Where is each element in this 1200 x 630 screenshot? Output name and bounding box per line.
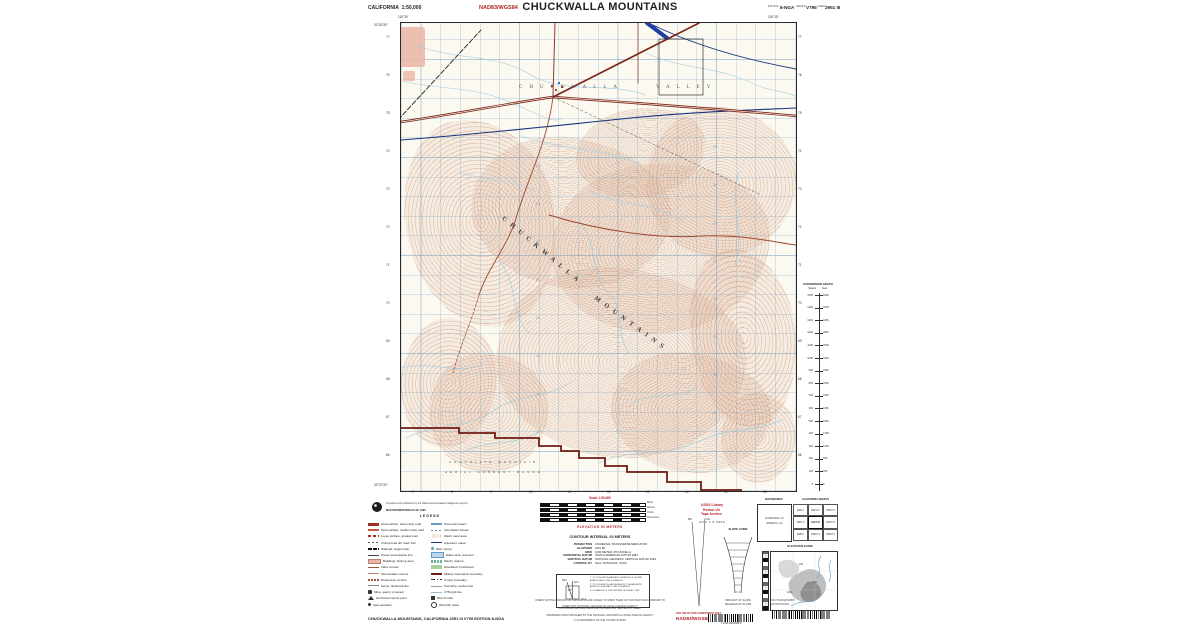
legend-block: Prepared and published by the National G…	[368, 500, 492, 613]
corner-lon-tr: 115°15′	[768, 16, 779, 20]
conversion-col-feet: Feet	[822, 288, 827, 291]
elevation-units-label: ELEVATION IN METERS	[520, 526, 680, 530]
legend-item-label: Power transmission line	[381, 553, 413, 557]
stamp-line-3: Tape Archive	[701, 513, 722, 517]
conversion-feet-value: 1000	[823, 445, 829, 448]
legend-item-label: Hard surface, medium duty road	[381, 528, 424, 532]
barcode-number: 1 1018 0051068 3	[708, 623, 754, 626]
conversion-ticks: 1500490014004600130042501200395011003600…	[797, 295, 839, 491]
wind-swatch-icon	[431, 602, 437, 608]
blue-swatch-icon	[431, 523, 442, 525]
sheet-title: CHUCKWALLA MOUNTAINS	[400, 1, 800, 13]
rail-swatch-icon	[368, 548, 379, 550]
canal-line	[653, 25, 796, 69]
footer-datum: NAD83/WGS84	[676, 617, 710, 622]
grid-number-bottom: 10	[529, 491, 533, 495]
legend-item-label: Water tank; reservoir	[446, 553, 474, 557]
declination-notes: 1. TO CONVERT A MAGNETIC AZIMUTH TO A GR…	[590, 577, 647, 594]
conversion-tick	[815, 434, 823, 435]
footer-center-1: PREPARED AND PUBLISHED BY THE NATIONAL G…	[530, 615, 670, 618]
declination-note: 1. TO CONVERT A MAGNETIC AZIMUTH TO A GR…	[590, 577, 647, 583]
boundaries-title: BOUNDARIES	[757, 499, 791, 502]
spec-value: NGA, NOS/NOAA, USGS	[595, 562, 627, 566]
grid-number-bottom: 9	[490, 491, 492, 495]
x-swatch-icon	[368, 590, 372, 594]
scale-bar	[540, 513, 646, 517]
conversion-title: CONVERSION GRAPH	[797, 283, 839, 286]
slope-guide-title: SLOPE GUIDE	[714, 528, 762, 531]
conversion-feet-value: 0	[823, 483, 824, 486]
footer-edition-note: EDITION 8-NGA	[770, 604, 789, 607]
cbrownd-swatch-icon	[368, 579, 379, 581]
conversion-meters-value: 1200	[807, 331, 813, 334]
legend-item-label: Woodland; brushwood	[444, 565, 474, 569]
bdry-swatch-icon	[431, 573, 442, 575]
conversion-feet-value: 1950	[823, 407, 829, 410]
scale-label: Scale 1:50,000	[520, 497, 680, 501]
conversion-meters-value: 400	[809, 432, 813, 435]
footer-sheet-id: CHUCKWALLA MOUNTAINS, CALIFORNIA 2951 II…	[368, 617, 504, 621]
grid-number-left: 67	[386, 416, 390, 420]
conversion-graph: CONVERSION GRAPH Meters Feet 15004900140…	[797, 283, 839, 495]
adjoining-sheet-cell: 3050 IV	[823, 529, 838, 541]
grid-number-bottom: 8	[451, 491, 453, 495]
gunnery-range-label-2: AERIAL GUNNERY RANGE	[445, 471, 543, 474]
dotb-swatch-icon	[431, 547, 434, 550]
grid-number-left: 72	[386, 226, 390, 230]
conversion-meters-value: 500	[809, 420, 813, 423]
legend-item-label: Perennial stream	[444, 522, 467, 526]
conversion-feet-value: 4900	[823, 294, 829, 297]
stream-lines	[401, 45, 796, 463]
interior-grid-number: 23	[713, 222, 717, 226]
adjoining-sheet-cell: 2951 IV	[808, 504, 823, 516]
series-prefix: SERIES	[796, 6, 806, 9]
bluet-swatch-icon	[431, 542, 442, 544]
sheets-grid-title: CALIFORNIA SHEETS	[793, 499, 838, 502]
grid-number-bottom: 13	[646, 491, 650, 495]
valley-label-2: VALLEY	[656, 85, 717, 91]
conversion-tick	[815, 459, 823, 460]
grid-number-left: 73	[386, 188, 390, 192]
svg-text:GN: GN	[574, 580, 579, 584]
legend-item-label: Bench mark	[437, 596, 453, 600]
corner-lat-tl: 33°52′30″	[374, 24, 388, 28]
spec-row: CONTROL BYNGA, NOS/NOAA, USGS	[534, 562, 666, 566]
conversion-feet-value: 2300	[823, 394, 829, 397]
conversion-feet-value: 4250	[823, 319, 829, 322]
road2-swatch-icon	[368, 523, 379, 526]
pink-swatch-icon	[368, 559, 381, 564]
interior-grid-number: 21	[536, 279, 540, 283]
conversion-col-meters: Meters	[799, 288, 816, 291]
legend-item-label: Military reservation boundary	[444, 572, 483, 576]
legend-item: Windmill; tower	[431, 601, 492, 607]
interior-grid-number: 22	[536, 241, 540, 245]
boundaries-box: RIVERSIDE CO IMPERIAL CO	[757, 504, 792, 542]
boundaries-line-2: IMPERIAL CO	[758, 523, 791, 526]
conversion-tick	[815, 308, 823, 309]
sect-swatch-icon	[431, 586, 442, 587]
grid-number-bottom: 7	[412, 491, 414, 495]
contour-interval-label: CONTOUR INTERVAL 20 METERS	[520, 535, 680, 539]
stamp-date: AUG 1 9 2003	[699, 521, 725, 524]
map-specs: PROJECTIONUNIVERSAL TRANSVERSE MERCATORE…	[534, 543, 666, 566]
grid-number-bottom: 11	[568, 491, 571, 495]
conversion-meters-value: 900	[809, 369, 813, 372]
powerline	[553, 97, 761, 195]
conversion-tick	[815, 383, 823, 384]
sheet-value: 2951 III	[825, 5, 840, 10]
conversion-tick	[815, 320, 823, 321]
elevation-guide-title: ELEVATION GUIDE	[762, 545, 838, 548]
legend-item-label: Wash; sand area	[444, 534, 467, 538]
tri-swatch-icon	[368, 596, 374, 600]
nga-globe-logo-icon	[372, 502, 382, 512]
interior-grid-number: 21	[713, 298, 717, 302]
conversion-feet-value: 3950	[823, 331, 829, 334]
adjoining-sheet-cell: 3051 IV	[823, 504, 838, 516]
grid-number-left: 76	[386, 74, 390, 78]
scale-bar	[540, 508, 646, 512]
interior-grid-number: 20	[713, 336, 717, 340]
grid-number-left: 71	[386, 264, 390, 268]
dot-swatch-icon	[368, 603, 371, 606]
declination-note: 2. TO CONVERT A GRID AZIMUTH TO A MAGNET…	[590, 584, 647, 590]
scale-bar	[540, 518, 646, 522]
range-road	[549, 215, 796, 245]
conversion-tick	[815, 371, 823, 372]
conversion-feet-value: 1300	[823, 432, 829, 435]
conversion-tick	[815, 408, 823, 409]
conversion-tick	[815, 358, 823, 359]
scale-bar	[540, 503, 646, 507]
declination-note: 3. G-M ANGLE IS FOR CENTER OF SHEET, 199…	[590, 590, 647, 593]
grid-number-right: 72	[798, 226, 802, 230]
boundaries-line-1: RIVERSIDE CO	[758, 518, 791, 521]
conversion-tick	[815, 446, 823, 447]
legend-credit: Prepared and published by the National G…	[386, 503, 468, 506]
conversion-feet-value: 2950	[823, 369, 829, 372]
legend-item-label: Depression contour	[381, 578, 407, 582]
green-swatch-icon	[431, 565, 442, 569]
conversion-meters-value: 1400	[807, 306, 813, 309]
conversion-feet-value: 650	[823, 457, 827, 460]
interior-grid-number: 18	[713, 412, 717, 416]
conversion-feet-value: 4600	[823, 306, 829, 309]
conversion-tick	[815, 396, 823, 397]
conversion-meters-value: 0	[812, 483, 813, 486]
legend-item-label: Unimproved dirt road; trail	[381, 541, 416, 545]
sand-swatch-icon	[431, 534, 442, 538]
svg-text:MN: MN	[688, 517, 692, 521]
adjoining-sheet-cell: 2950 IV	[808, 529, 823, 541]
conversion-meters-value: 700	[809, 394, 813, 397]
scale-bar-unit: Meters	[647, 507, 655, 510]
grid-number-bottom: 16	[763, 491, 767, 495]
corner-lon-tl: 115°30′	[398, 16, 409, 20]
grid-number-left: 68	[386, 378, 390, 382]
legend-item-label: Well; spring	[436, 547, 452, 551]
legend-item-label: Hard surface, heavy duty road	[381, 522, 421, 526]
svg-text:13°: 13°	[568, 588, 573, 592]
declination-angle-diagram: MN GN	[686, 516, 714, 608]
bm-swatch-icon	[431, 596, 435, 600]
barcode-footer	[708, 614, 754, 622]
interior-grid-number: 18	[536, 393, 540, 397]
adjoining-sheet-cell: 2851 II	[793, 516, 808, 528]
svg-text:MN: MN	[562, 578, 567, 582]
legend-item-label: Fence; landmark line	[381, 584, 409, 588]
map-canvas[interactable]: CHUCKWALLA VALLEY CHUCKWALLA MOUNTAINS C…	[400, 22, 797, 492]
legend-item-label: Mine; quarry; prospect	[374, 590, 404, 594]
conversion-meters-value: 600	[809, 407, 813, 410]
interior-grid-number: 22	[713, 260, 717, 264]
elevation-spot-value: 800	[813, 582, 817, 585]
power-swatch-icon	[368, 555, 379, 556]
legend-item-label: UTM grid line	[444, 590, 462, 594]
legend-column-left: Hard surface, heavy duty roadHard surfac…	[368, 521, 428, 608]
legend-column-right: Perennial streamIntermittent streamWash;…	[431, 521, 492, 608]
conversion-meters-value: 1100	[807, 344, 813, 347]
conversion-tick	[815, 345, 823, 346]
interior-grid-number: 24	[536, 165, 540, 169]
marsh-swatch-icon	[431, 560, 442, 563]
legend-info-date: MAP INFORMATION AS OF 1995	[386, 510, 426, 513]
legend-item-label: Buildings; built-up area	[383, 559, 414, 563]
grid-number-left: 75	[386, 112, 390, 116]
barcode-right	[772, 611, 830, 619]
blued-swatch-icon	[431, 530, 442, 532]
grid-number-bottom: 14	[685, 491, 689, 495]
adjoining-sheets-grid: 2851 I2951 IV3051 IV2851 II2951 III3051 …	[793, 504, 838, 541]
scale-bar-unit: Kilometers	[647, 517, 659, 520]
valley-label-1: CHUCKWALLA	[519, 85, 624, 91]
grid-swatch-icon	[431, 592, 442, 593]
conversion-meters-value: 300	[809, 445, 813, 448]
grid-number-left: 77	[386, 36, 390, 40]
legend-item: Spot elevation	[368, 601, 428, 607]
conversion-tick	[815, 421, 823, 422]
conversion-feet-value: 350	[823, 470, 827, 473]
legend-item-label: Marsh; swamp	[444, 559, 464, 563]
bdry2-swatch-icon	[431, 579, 442, 580]
bluebox-swatch-icon	[431, 552, 444, 558]
grid-number-right: 76	[798, 74, 802, 78]
slope-note-2: DEGREES OF SLOPE	[714, 604, 762, 607]
conversion-meters-value: 200	[809, 457, 813, 460]
conversion-meters-value: 1000	[807, 357, 813, 360]
interior-grid-number: 17	[536, 431, 540, 435]
scale-bars: MilesMetersYardsKilometers	[528, 503, 678, 523]
grid-number-right: 71	[798, 264, 802, 268]
legend-item-label: County boundary	[444, 578, 467, 582]
interior-grid-number: 23	[536, 203, 540, 207]
spec-key: CONTROL BY	[534, 562, 595, 566]
gunnery-range-label-1: CHOCOLATE MOUNTAIN	[449, 461, 538, 464]
copyright-line-2: DIRECTOR, NATIONAL GEOSPATIAL-INTELLIGEN…	[520, 606, 680, 609]
series-value: V795	[806, 5, 817, 10]
conversion-tick	[815, 471, 823, 472]
built-up-area	[403, 71, 415, 81]
road1-swatch-icon	[368, 529, 379, 531]
legend-item-label: Windmill; tower	[439, 603, 459, 607]
grid-number-right: 75	[798, 112, 802, 116]
conversion-meters-value: 1500	[807, 294, 813, 297]
topographic-map-sheet: { "colors":{"accent_red":"#b01f24","road…	[0, 0, 1200, 630]
elevation-spot-value: 400	[799, 564, 803, 567]
grid-number-bottom: 15	[724, 491, 728, 495]
cbrown2-swatch-icon	[368, 567, 379, 569]
adjoining-sheet-cell: 2850 I	[793, 529, 808, 541]
map-line-features	[401, 23, 796, 491]
grid-number-bottom: 12	[607, 491, 611, 495]
conversion-feet-value: 2600	[823, 382, 829, 385]
legend-item-label: Township, section line	[444, 584, 473, 588]
dash-swatch-icon	[368, 542, 379, 543]
elevation-spot-value: 1200	[787, 592, 792, 595]
trail	[453, 295, 479, 373]
region-label: CALIFORNIA	[368, 5, 399, 11]
conversion-feet-value: 3600	[823, 344, 829, 347]
roadl-swatch-icon	[368, 535, 379, 537]
copyright-line-1: USERS NOTING ERRORS OR OMISSIONS ARE URG…	[520, 600, 680, 603]
adjoining-sheet-cell: 3051 III	[823, 516, 838, 528]
legend-item-label: Aqueduct; canal	[444, 541, 466, 545]
conversion-meters-value: 100	[809, 470, 813, 473]
scale-and-specs-block: Scale 1:50,000 MilesMetersYardsKilometer…	[520, 497, 680, 615]
interior-grid-number: 19	[536, 355, 540, 359]
conversion-tick	[815, 295, 823, 296]
grid-number-left: 74	[386, 150, 390, 154]
wash-shading	[461, 135, 683, 221]
interior-grid-number: 24	[713, 184, 717, 188]
interior-grid-number: 25	[713, 146, 717, 150]
scale-bar-unit: Yards	[647, 512, 654, 515]
grid-number-right: 74	[798, 150, 802, 154]
legend-item-label: Spot elevation	[373, 603, 392, 607]
adjoining-sheet-cell: 2951 III	[808, 516, 823, 528]
legend-item-label: Intermittent stream	[444, 528, 469, 532]
interior-grid-number: 20	[536, 317, 540, 321]
scale-bar-unit: Miles	[647, 502, 653, 505]
slope-guide-diagram	[714, 533, 762, 599]
slope-guide: SLOPE GUIDE PERCENT OF SLOPE DEGREES OF …	[714, 528, 762, 608]
legend-title: LEGEND	[368, 515, 492, 519]
legend-item-label: Index contour	[381, 565, 399, 569]
cbrown1-swatch-icon	[368, 573, 379, 574]
legend-item-label: Intermediate contour	[381, 572, 409, 576]
conversion-tick	[815, 333, 823, 334]
grid-number-right: 73	[798, 188, 802, 192]
grid-number-left: 69	[386, 340, 390, 344]
grid-number-right: 77	[798, 36, 802, 40]
conversion-meters-value: 800	[809, 382, 813, 385]
elevation-guide-bar	[762, 551, 769, 611]
conversion-feet-value: 1650	[823, 420, 829, 423]
conversion-feet-value: 3300	[823, 357, 829, 360]
legend-item-label: Loose surface, graded road	[381, 534, 418, 538]
conversion-meters-value: 1300	[807, 319, 813, 322]
legend-item-label: Railroad: single track	[381, 547, 409, 551]
adjoining-sheet-cell: 2851 I	[793, 504, 808, 516]
corner-lat-bl: 33°37′30″	[374, 484, 388, 488]
edition-value: 8-NGA	[780, 5, 794, 10]
gray-swatch-icon	[368, 585, 379, 586]
edition-prefix: EDITION	[768, 6, 779, 9]
grid-number-left: 66	[386, 454, 390, 458]
conversion-tick	[815, 484, 823, 485]
interior-grid-number: 19	[713, 374, 717, 378]
footer-center-2: © GOVERNMENT OF THE UNITED STATES	[530, 620, 670, 623]
legend-item-label: Horizontal control point	[376, 596, 407, 600]
declination-box: GN MN 13° 0°14′ 1. TO CONVERT A MAGNETIC…	[556, 574, 650, 608]
grid-number-left: 70	[386, 302, 390, 306]
